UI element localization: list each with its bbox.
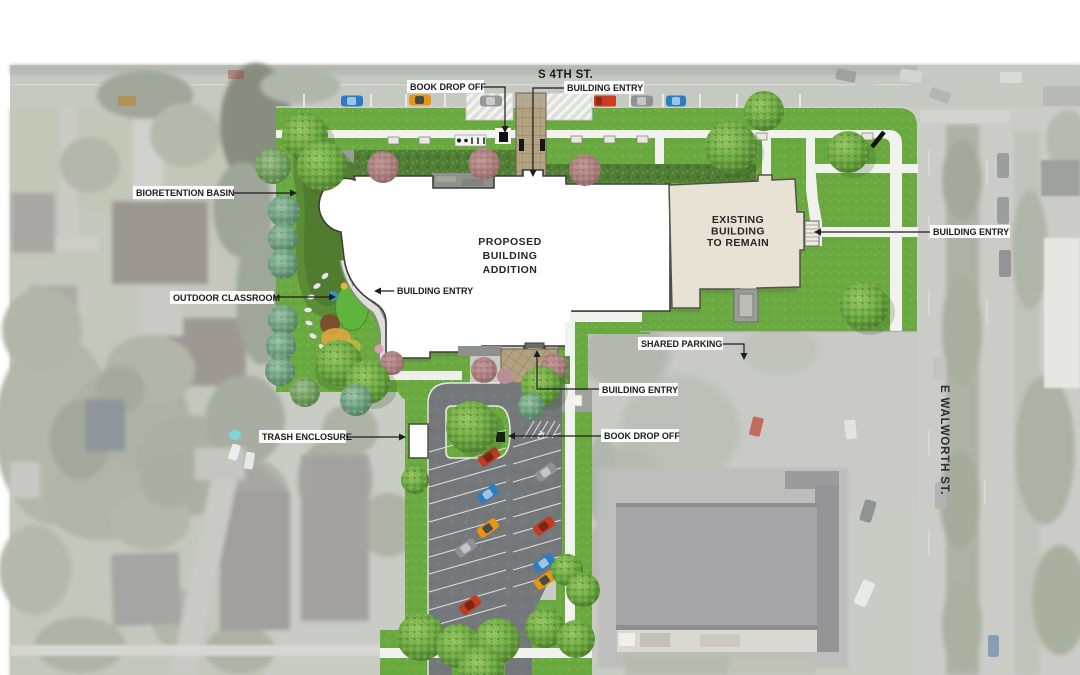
svg-text:PROPOSED: PROPOSED: [478, 236, 542, 248]
svg-text:BOOK DROP OFF: BOOK DROP OFF: [604, 431, 680, 441]
svg-text:BUILDING ENTRY: BUILDING ENTRY: [933, 227, 1009, 237]
svg-text:SHARED PARKING: SHARED PARKING: [641, 339, 722, 349]
svg-text:BOOK DROP OFF: BOOK DROP OFF: [410, 82, 486, 92]
svg-text:BUILDING ENTRY: BUILDING ENTRY: [602, 385, 678, 395]
svg-text:BUILDING ENTRY: BUILDING ENTRY: [397, 286, 473, 296]
svg-text:OUTDOOR CLASSROOM: OUTDOOR CLASSROOM: [173, 293, 280, 303]
svg-text:S 4TH ST.: S 4TH ST.: [538, 69, 593, 81]
svg-text:BUILDING: BUILDING: [483, 250, 538, 262]
svg-text:BIORETENTION BASIN: BIORETENTION BASIN: [136, 188, 235, 198]
svg-text:TRASH ENCLOSURE: TRASH ENCLOSURE: [262, 432, 352, 442]
svg-text:TO REMAIN: TO REMAIN: [707, 237, 769, 249]
svg-text:E WALWORTH ST.: E WALWORTH ST.: [938, 385, 950, 495]
svg-text:BUILDING: BUILDING: [711, 226, 765, 238]
svg-text:BUILDING ENTRY: BUILDING ENTRY: [567, 83, 643, 93]
svg-text:EXISTING: EXISTING: [712, 214, 764, 226]
svg-text:ADDITION: ADDITION: [483, 264, 538, 276]
